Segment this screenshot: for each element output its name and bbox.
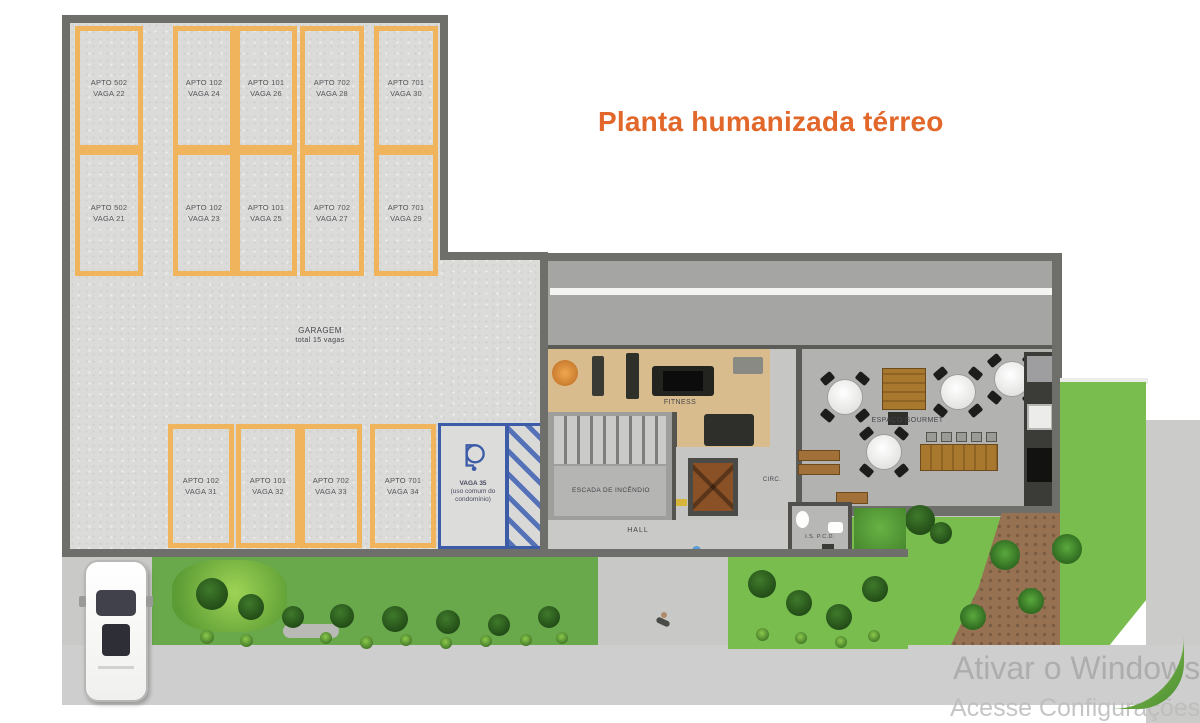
round-table-icon	[828, 380, 862, 414]
spot-apto-label: APTO 502	[91, 203, 127, 212]
gym-bench-icon	[733, 357, 763, 374]
entrance-walkway	[598, 557, 728, 645]
tree	[238, 594, 264, 620]
building-wall-left	[540, 253, 548, 557]
parking-spot-vaga-24: APTO 102 VAGA 24	[173, 26, 235, 150]
garage-label-block: GARAGEM total 15 vagas	[250, 326, 390, 346]
bush	[320, 632, 332, 644]
tree	[330, 604, 354, 628]
spot-vaga-label: VAGA 29	[390, 214, 422, 223]
car-roof-line	[98, 666, 134, 669]
spot-apto-label: APTO 702	[314, 203, 350, 212]
car-sunroof	[102, 624, 130, 656]
parking-spot-vaga-25: APTO 101 VAGA 25	[235, 150, 297, 276]
spot-apto-label: APTO 102	[186, 203, 222, 212]
parking-spot-vaga-33: APTO 702 VAGA 33	[300, 424, 362, 548]
car-top-view	[84, 560, 148, 702]
bush	[795, 632, 807, 644]
floor-tag-icon	[676, 499, 687, 506]
round-table-set	[936, 370, 980, 414]
palm-tree	[960, 604, 986, 630]
palm-tree	[990, 540, 1020, 570]
spot-apto-label: APTO 102	[186, 78, 222, 87]
car-mirror	[79, 596, 86, 607]
tree	[748, 570, 776, 598]
spot-vaga-label: VAGA 30	[390, 89, 422, 98]
bush	[756, 628, 769, 641]
spot-apto-label: APTO 101	[248, 78, 284, 87]
garage-wall-step	[440, 252, 548, 260]
spot-vaga-label: VAGA 34	[387, 487, 419, 496]
parking-spot-vaga-29: APTO 701 VAGA 29	[374, 150, 438, 276]
tree	[196, 578, 228, 610]
parking-spot-vaga-23: APTO 102 VAGA 23	[173, 150, 235, 276]
dining-table-icon	[920, 444, 998, 471]
tree	[488, 614, 510, 636]
terrace-band	[548, 261, 1054, 348]
circulation-label: CIRC.	[748, 477, 796, 483]
parking-spot-vaga-32: APTO 101 VAGA 32	[236, 424, 300, 548]
wheelchair-icon	[456, 440, 490, 474]
curved-hedge-icon	[1110, 635, 1192, 717]
accessible-access-aisle	[506, 423, 544, 549]
gym-machine-icon	[592, 356, 604, 396]
palm-tree	[1052, 534, 1082, 564]
spot-apto-label: APTO 701	[388, 78, 424, 87]
spot-vaga-label: VAGA 22	[93, 89, 125, 98]
spot-apto-label: APTO 502	[91, 78, 127, 87]
grass-patch	[854, 508, 906, 552]
bush	[520, 634, 532, 646]
spot-note-line1: (uso comum do	[451, 488, 496, 496]
round-table-set	[823, 375, 867, 419]
terrace-stripe	[550, 288, 1052, 295]
sink-icon	[1027, 404, 1053, 430]
bright-lawn-patch	[172, 560, 287, 632]
floor-plan: APTO 502 VAGA 22 APTO 102 VAGA 24 APTO 1…	[0, 0, 1200, 723]
spot-vaga-label: VAGA 25	[250, 214, 282, 223]
spot-apto-label: APTO 702	[314, 78, 350, 87]
chair-icon	[956, 432, 967, 442]
building-wall-bottom	[540, 549, 908, 557]
bush	[360, 636, 373, 649]
person-figure	[661, 612, 667, 618]
bush	[400, 634, 412, 646]
garage-sublabel: total 15 vagas	[250, 336, 390, 346]
garage-label: GARAGEM	[250, 326, 390, 336]
lamp-icon	[552, 360, 578, 386]
tree	[538, 606, 560, 628]
spot-apto-label: APTO 701	[385, 476, 421, 485]
sink-icon	[828, 522, 843, 533]
bench-icon	[798, 464, 840, 475]
spot-vaga-label: VAGA 26	[250, 89, 282, 98]
fridge-icon	[1027, 356, 1053, 382]
toilet-icon	[796, 511, 809, 528]
garage-wall-right	[440, 15, 448, 260]
spot-vaga-label: VAGA 23	[188, 214, 220, 223]
tree	[930, 522, 952, 544]
palm-tree	[1018, 588, 1044, 614]
spot-vaga-label: VAGA 21	[93, 214, 125, 223]
spot-apto-label: APTO 101	[250, 476, 286, 485]
round-table-icon	[867, 435, 901, 469]
chair-icon	[986, 432, 997, 442]
spot-vaga-label: VAGA 31	[185, 487, 217, 496]
tree	[282, 606, 304, 628]
round-table-set	[862, 430, 906, 474]
garage-wall-top	[62, 15, 448, 23]
hall-label: HALL	[598, 527, 678, 534]
parking-spot-vaga-22: APTO 502 VAGA 22	[75, 26, 143, 150]
parking-spot-vaga-31: APTO 102 VAGA 31	[168, 424, 234, 548]
stove-icon	[1027, 448, 1053, 482]
round-table-icon	[941, 375, 975, 409]
car-mirror	[146, 596, 153, 607]
stairs-icon	[554, 416, 666, 464]
garage-wall-left	[62, 15, 70, 557]
treadmill-icon	[652, 366, 714, 396]
page-title: Planta humanizada térreo	[598, 106, 944, 138]
garage-wall-bottom	[62, 549, 548, 557]
building-wall-top	[540, 253, 1062, 261]
spot-vaga-label: VAGA 27	[316, 214, 348, 223]
spot-apto-label: APTO 701	[388, 203, 424, 212]
spot-apto-label: APTO 102	[183, 476, 219, 485]
spot-vaga-label: VAGA 24	[188, 89, 220, 98]
spot-apto-label: APTO 702	[313, 476, 349, 485]
chair-icon	[941, 432, 952, 442]
tree	[436, 610, 460, 634]
accessible-wc-label: I.S. P.C.D.	[792, 534, 848, 540]
parking-spot-vaga-21: APTO 502 VAGA 21	[75, 150, 143, 276]
accessible-wc-room: I.S. P.C.D.	[788, 502, 852, 555]
parking-spot-vaga-26: APTO 101 VAGA 26	[235, 26, 297, 150]
gym-machine-icon	[626, 353, 639, 399]
gourmet-label: ESPAÇO GOURMET	[845, 417, 970, 424]
bush	[556, 632, 568, 644]
parking-spot-vaga-28: APTO 702 VAGA 28	[300, 26, 364, 150]
bush	[200, 630, 214, 644]
car-windshield	[96, 590, 136, 616]
fitness-label: FITNESS	[640, 399, 720, 406]
buffet-cabinet	[882, 368, 926, 410]
tree	[862, 576, 888, 602]
bush	[835, 636, 847, 648]
spot-vaga-label: VAGA 33	[315, 487, 347, 496]
gym-machine-icon	[704, 414, 754, 446]
east-lawn	[1060, 382, 1146, 648]
fire-stair-label: ESCADA DE INCÊNDIO	[545, 487, 677, 494]
chair-icon	[971, 432, 982, 442]
tree	[382, 606, 408, 632]
elevator-shaft	[688, 458, 738, 516]
spot-apto-label: APTO 101	[248, 203, 284, 212]
spot-vaga-label: VAGA 35	[459, 480, 486, 488]
tree	[826, 604, 852, 630]
spot-vaga-label: VAGA 28	[316, 89, 348, 98]
spot-note-line2: condomínio)	[455, 496, 491, 504]
bush	[440, 637, 452, 649]
bush	[240, 634, 253, 647]
parking-spot-vaga-27: APTO 702 VAGA 27	[300, 150, 364, 276]
spot-vaga-label: VAGA 32	[252, 487, 284, 496]
bench-icon	[798, 450, 840, 461]
parking-spot-vaga-35-accessible: VAGA 35 (uso comum do condomínio)	[438, 423, 508, 549]
tree	[786, 590, 812, 616]
treadmill-belt	[663, 371, 703, 391]
chair-icon	[926, 432, 937, 442]
parking-spot-vaga-30: APTO 701 VAGA 30	[374, 26, 438, 150]
bush	[480, 635, 492, 647]
bush	[868, 630, 880, 642]
parking-spot-vaga-34: APTO 701 VAGA 34	[370, 424, 436, 548]
